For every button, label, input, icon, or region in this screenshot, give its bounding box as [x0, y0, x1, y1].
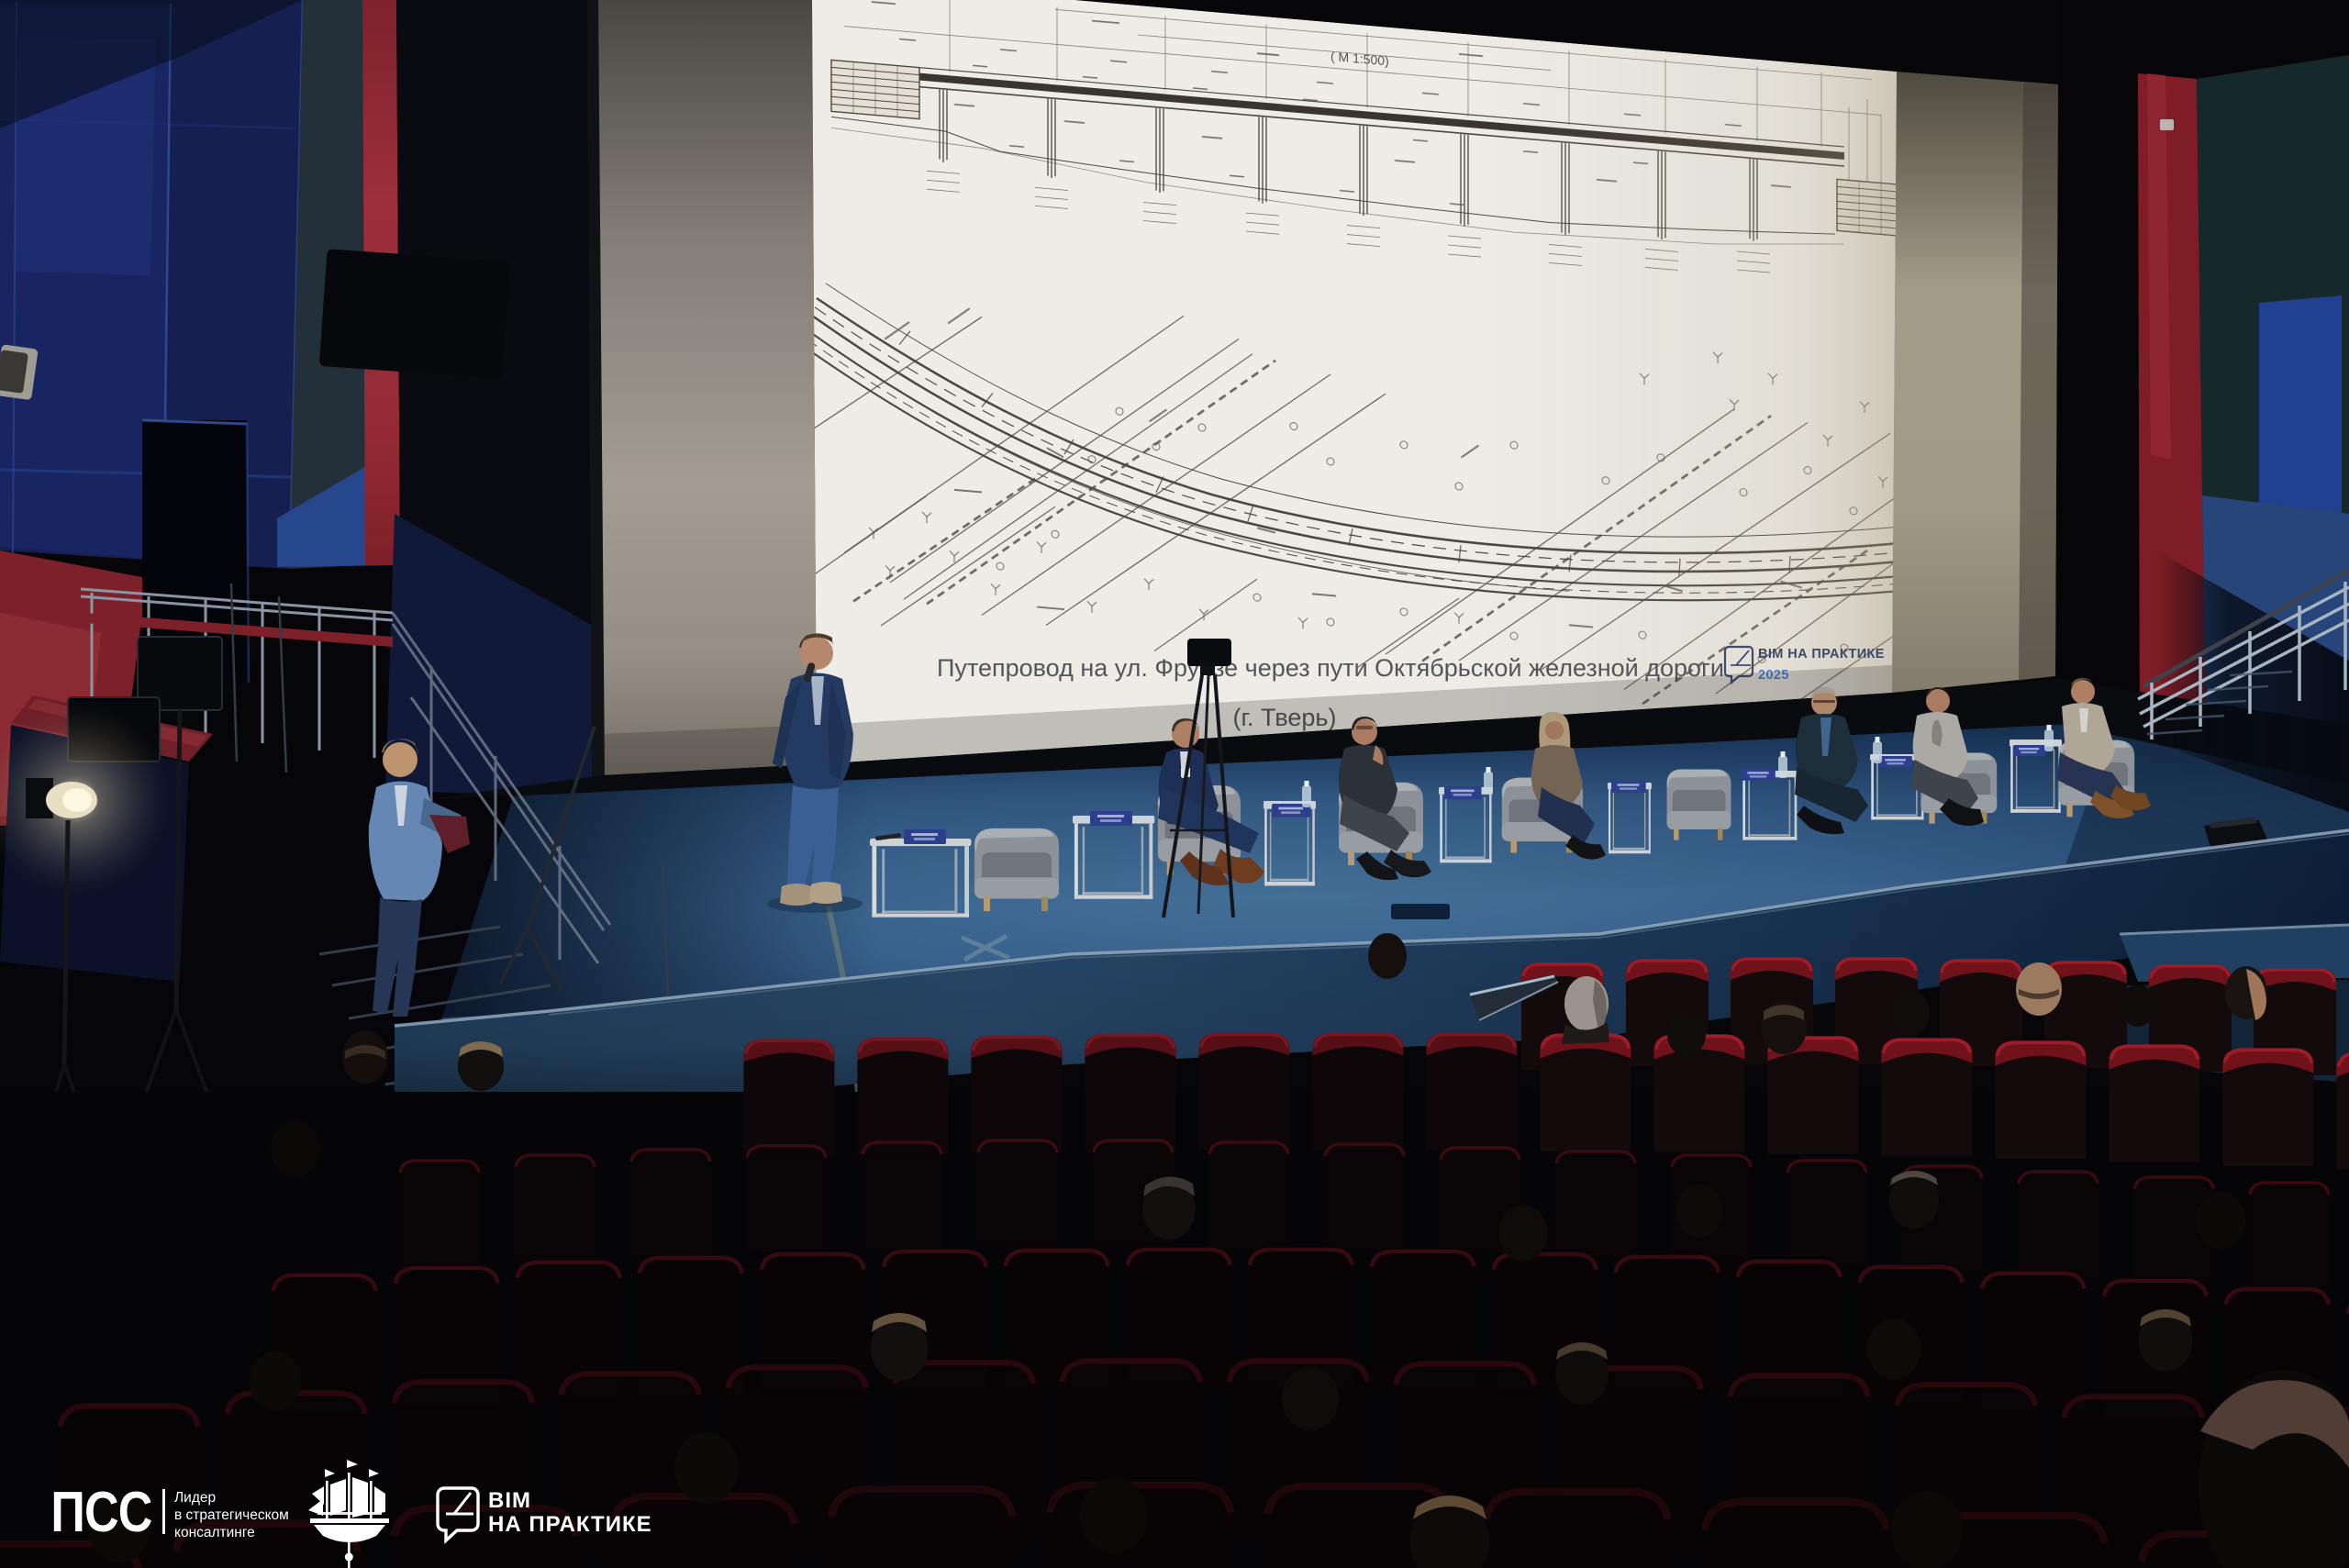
svg-text:Лидер: Лидер [174, 1490, 216, 1506]
svg-text:НА ПРАКТИКЕ: НА ПРАКТИКЕ [488, 1512, 652, 1537]
svg-text:BIM НА ПРАКТИКЕ: BIM НА ПРАКТИКЕ [1758, 647, 1885, 662]
svg-text:консалтинге: консалтинге [174, 1525, 255, 1540]
svg-text:ПСС: ПСС [50, 1481, 151, 1544]
svg-text:BIM: BIM [488, 1488, 531, 1513]
svg-text:в стратегическом: в стратегическом [174, 1507, 289, 1523]
svg-text:Путепровод на ул. Фрунзе через: Путепровод на ул. Фрунзе через пути Октя… [937, 654, 1724, 682]
